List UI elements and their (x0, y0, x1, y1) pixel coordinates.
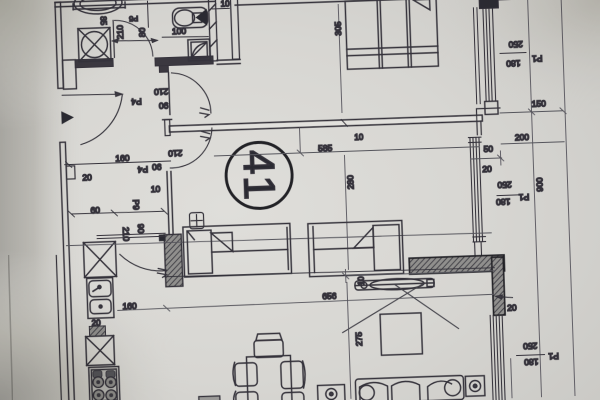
svg-text:180: 180 (506, 58, 521, 68)
svg-text:305: 305 (333, 21, 343, 36)
svg-text:20: 20 (507, 302, 517, 312)
svg-text:200: 200 (515, 132, 530, 142)
svg-text:85: 85 (98, 16, 107, 26)
svg-text:100: 100 (172, 26, 187, 36)
svg-text:90: 90 (152, 162, 162, 172)
svg-text:585: 585 (318, 143, 333, 153)
svg-text:90: 90 (158, 101, 168, 111)
svg-text:180: 180 (496, 197, 511, 207)
svg-text:180: 180 (524, 357, 539, 367)
svg-text:P4: P4 (131, 96, 142, 106)
svg-text:P1: P1 (532, 53, 543, 63)
svg-text:41: 41 (233, 149, 284, 202)
svg-text:P1: P1 (548, 351, 559, 361)
svg-text:P5: P5 (129, 14, 138, 23)
svg-text:280: 280 (345, 175, 355, 190)
svg-text:10: 10 (354, 133, 364, 142)
svg-text:10: 10 (221, 0, 231, 9)
svg-text:P9: P9 (131, 199, 141, 210)
svg-text:20: 20 (482, 164, 492, 174)
svg-text:250: 250 (497, 180, 512, 190)
svg-text:900: 900 (534, 177, 544, 192)
svg-text:P4: P4 (137, 164, 148, 174)
svg-text:50: 50 (483, 144, 493, 154)
svg-text:250: 250 (523, 341, 538, 351)
svg-text:210: 210 (115, 25, 125, 40)
svg-text:656: 656 (322, 291, 337, 301)
svg-text:210: 210 (154, 87, 169, 97)
svg-text:P1: P1 (518, 192, 529, 202)
svg-text:210: 210 (168, 148, 183, 158)
svg-text:90: 90 (136, 224, 146, 234)
svg-text:250: 250 (508, 39, 523, 49)
svg-text:10: 10 (151, 184, 161, 194)
svg-text:160: 160 (115, 153, 130, 163)
svg-text:20: 20 (82, 172, 92, 182)
svg-text:150: 150 (532, 98, 547, 108)
svg-text:275: 275 (354, 331, 364, 346)
